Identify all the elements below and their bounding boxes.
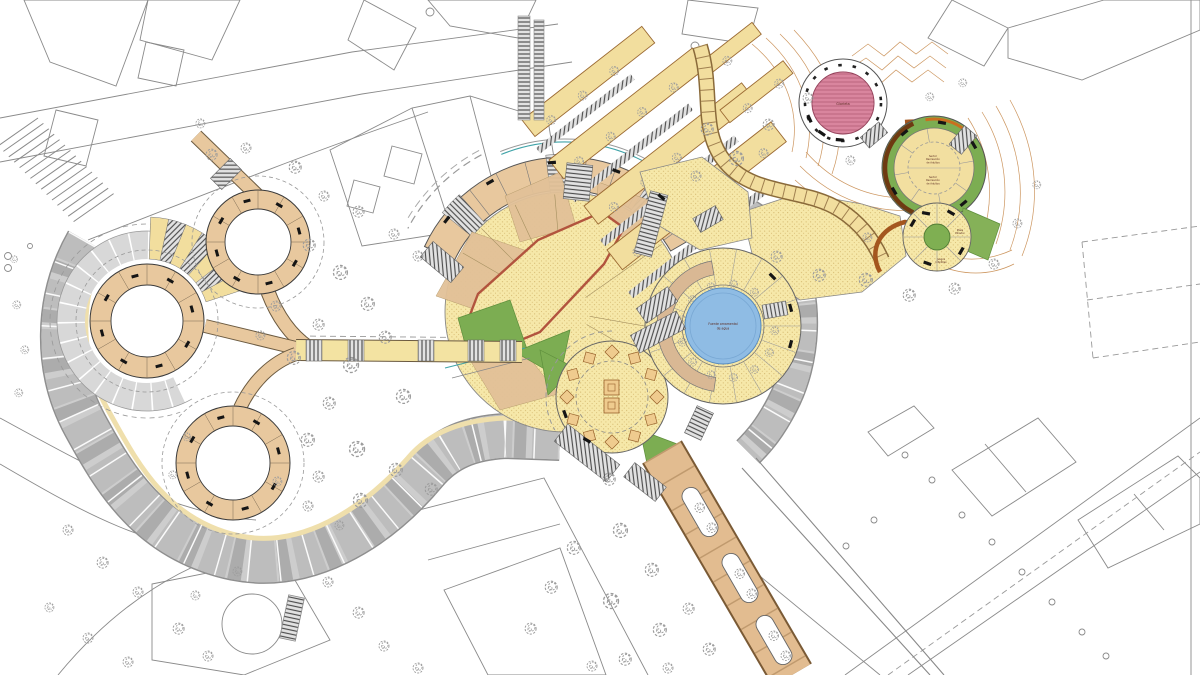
boulevard bbox=[662, 452, 795, 675]
small-plaza-south-label-2: Infantiles bbox=[935, 261, 947, 264]
fountain-label-2: de agua bbox=[717, 326, 730, 330]
site-plan-canvas: Glorieta Sector Recreación de Adultos Se… bbox=[0, 0, 1200, 675]
fountain-label-1: Fuente ornamental bbox=[708, 322, 737, 326]
pink-plaza-label: Glorieta bbox=[836, 102, 849, 106]
green-plaza-upper-label-3: de Adultos bbox=[926, 160, 940, 164]
site-plan-page: Glorieta Sector Recreación de Adultos Se… bbox=[0, 0, 1200, 675]
green-plaza-lower-label-3: de Adultos bbox=[926, 181, 940, 185]
small-plaza-east-label-2: Mirador bbox=[955, 232, 964, 235]
